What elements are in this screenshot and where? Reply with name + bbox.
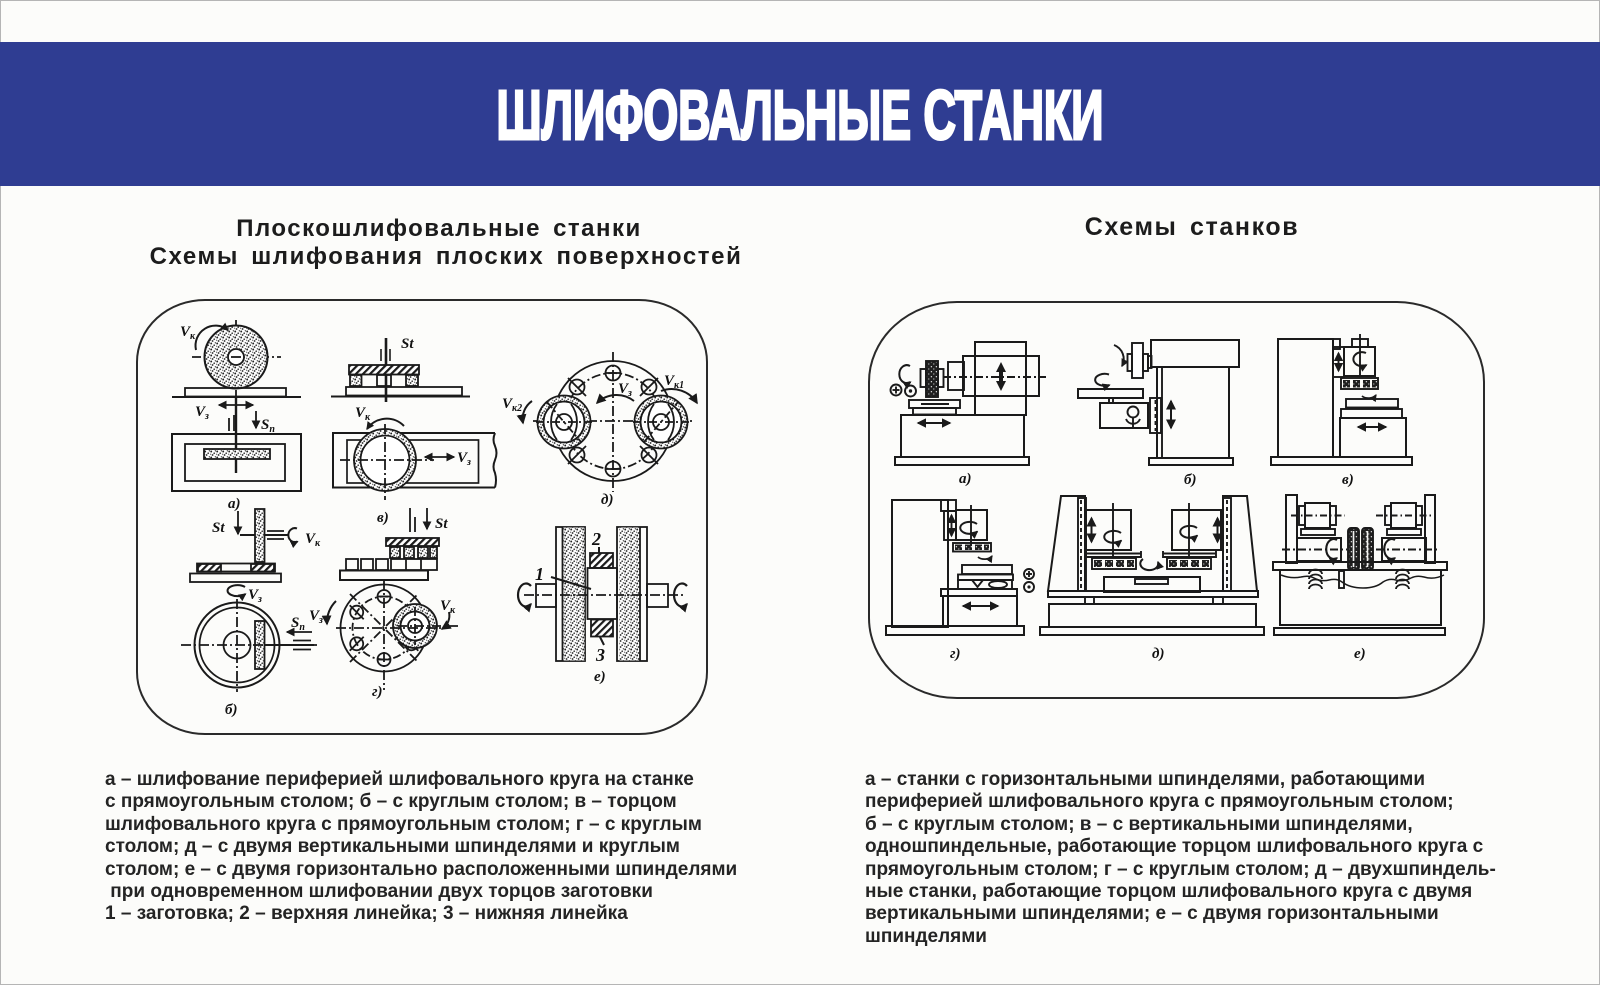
svg-text:е): е): [1354, 646, 1366, 662]
svg-text:Vз: Vз: [195, 404, 209, 422]
svg-text:б): б): [1184, 472, 1196, 488]
svg-text:а): а): [228, 496, 241, 512]
svg-text:Vк: Vк: [180, 324, 196, 342]
svg-text:г): г): [950, 646, 961, 662]
svg-text:Sп: Sп: [261, 417, 275, 435]
svg-text:Vк: Vк: [355, 405, 371, 423]
svg-text:St: St: [401, 336, 414, 352]
svg-text:Vз: Vз: [309, 608, 323, 626]
svg-text:Vз: Vз: [248, 587, 262, 605]
svg-text:в): в): [1342, 472, 1354, 488]
svg-text:Sп: Sп: [291, 615, 305, 633]
svg-text:2: 2: [591, 529, 601, 549]
svg-text:Vк: Vк: [305, 531, 321, 549]
svg-text:Vз: Vз: [457, 450, 471, 468]
svg-text:St: St: [435, 516, 448, 532]
svg-text:Vк2: Vк2: [502, 396, 522, 414]
svg-text:б): б): [225, 702, 237, 718]
svg-text:1: 1: [535, 564, 544, 584]
svg-text:е): е): [594, 669, 606, 685]
svg-text:St: St: [212, 520, 225, 536]
svg-text:Vк: Vк: [440, 598, 456, 616]
svg-text:в): в): [377, 510, 389, 526]
svg-text:3: 3: [595, 645, 605, 665]
svg-text:д): д): [1152, 646, 1164, 662]
svg-text:г): г): [372, 684, 383, 700]
svg-text:а): а): [959, 471, 972, 487]
svg-text:д): д): [601, 492, 613, 508]
